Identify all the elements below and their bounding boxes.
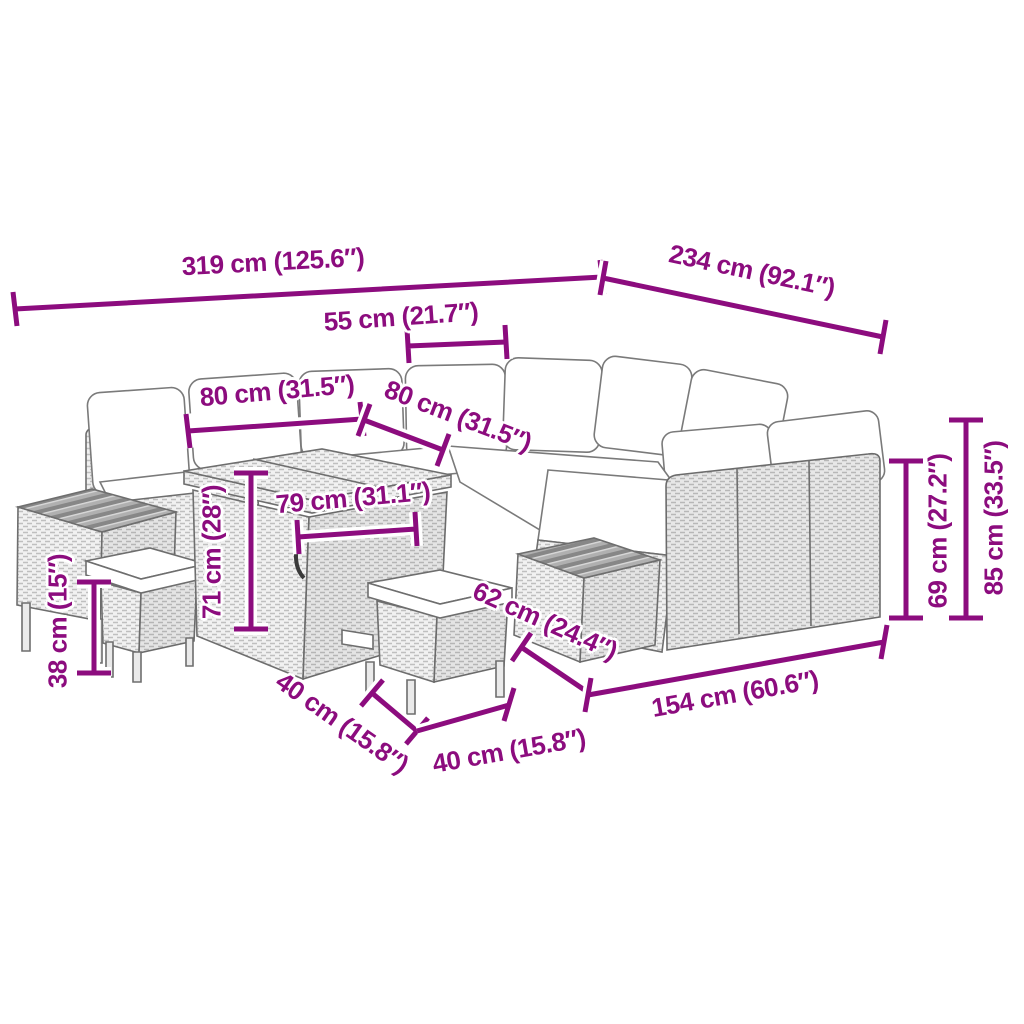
furniture-line-art	[0, 0, 1024, 1024]
dimension-label-stool-height: 38 cm (15″)	[43, 554, 74, 688]
product-dimension-diagram: 319 cm (125.6″) 234 cm (92.1″) 55 cm (21…	[0, 0, 1024, 1024]
left-stool	[86, 548, 206, 682]
dimension-label-overall-height: 85 cm (33.5″)	[979, 441, 1010, 596]
dimension-label-back-height: 69 cm (27.2″)	[923, 454, 954, 609]
sofa-back-panel	[666, 454, 880, 650]
dimension-line-back-height	[889, 461, 923, 618]
dimension-label-table-height: 71 cm (28″)	[197, 485, 228, 619]
